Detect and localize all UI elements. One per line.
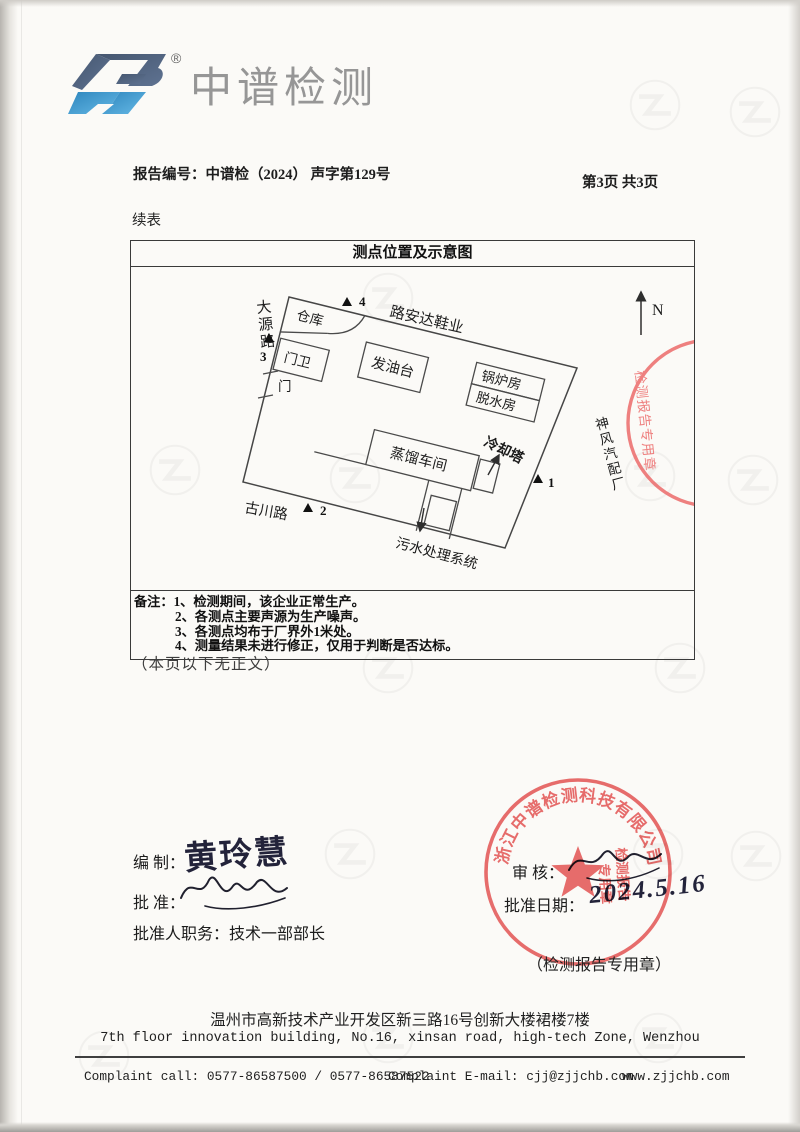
stamp-seal-text-2: 专用章: [596, 863, 615, 905]
gate-swing-arc: [327, 308, 364, 341]
note-item: 2、各测点主要声源为生产噪声。: [175, 610, 690, 625]
point-4-marker: [342, 297, 352, 306]
cooling-tower-label: 冷却塔: [481, 433, 527, 467]
point-1-number: 1: [548, 475, 555, 490]
brand-name: 中谱检测: [190, 54, 378, 115]
neighbor-top-label: 路安达鞋业: [388, 303, 465, 336]
warehouse-label: 仓库: [295, 308, 325, 329]
stamp-seal-text-1: 检测报告: [613, 847, 633, 902]
report-number-value: 中谱检（2024） 声字第129号: [206, 167, 391, 183]
diagram-title: 测点位置及示意图: [131, 241, 694, 267]
paper-fold-line: [21, 0, 22, 1132]
neighbor-right-label: 神风汽配厂: [594, 415, 627, 493]
north-label: N: [652, 302, 664, 319]
scanned-report-page: ® 中谱检测 报告编号：中谱检（2024） 声字第129号 第3页 共3页 续表…: [0, 0, 800, 1132]
address-english: 7th floor innovation building, No.16, xi…: [0, 1031, 800, 1046]
approver-title-line: 批准人职务：技术一部部长: [133, 920, 325, 944]
paper-edge-bottom: [0, 1122, 800, 1132]
gatehouse-label: 门卫: [282, 350, 312, 371]
continued-table-label: 续表: [132, 209, 161, 230]
site-diagram: 仓库 门卫 发油台 锅炉房 脱水房 蒸馏车间 大: [131, 267, 694, 591]
stamp-caption: （检测报告专用章）: [527, 951, 671, 975]
report-number-label: 报告编号：: [133, 167, 206, 183]
end-of-text-note: （本页以下无正文）: [132, 652, 281, 674]
approver-title-value: 技术一部部长: [229, 926, 325, 943]
road-guchuan-label: 古川路: [243, 499, 289, 523]
complaint-email: Complaint E-mail: cjj@zjjchb.com: [388, 1069, 634, 1084]
paper-edge-right: [788, 0, 800, 1132]
address-chinese: 温州市高新技术产业开发区新三路16号创新大楼裙楼7楼: [0, 1008, 800, 1030]
factory-boundary: [243, 297, 577, 548]
approver-title-label: 批准人职务：: [133, 926, 229, 943]
sewage-box: [424, 495, 456, 530]
point-2-marker: [303, 503, 313, 512]
complaint-phone: Complaint call: 0577-86587500 / 0577-865…: [84, 1069, 430, 1084]
paper-edge-left: [0, 0, 18, 1132]
paper-edge-top: [0, 0, 800, 7]
footer-divider: [75, 1056, 745, 1058]
site-diagram-svg: 仓库 门卫 发油台 锅炉房 脱水房 蒸馏车间 大: [131, 267, 694, 590]
oil-platform-label: 发油台: [370, 354, 416, 381]
point-4-number: 4: [359, 294, 366, 309]
note-item: 1、检测期间，该企业正常生产。: [174, 594, 365, 609]
company-round-stamp: 浙江中谱检测科技有限公司 检测报告 专用章: [476, 770, 680, 974]
notes-section: 备注：1、检测期间，该企业正常生产。 2、各测点主要声源为生产噪声。 3、各测点…: [131, 591, 694, 659]
website-url: www.zjjchb.com: [622, 1069, 730, 1084]
approved-by-signature-scribble: [175, 866, 297, 914]
zp-logo-icon: [62, 46, 184, 120]
gate-label: 门: [278, 379, 292, 394]
point-2-number: 2: [320, 503, 327, 518]
report-number-line: 报告编号：中谱检（2024） 声字第129号: [133, 163, 390, 184]
page-indicator: 第3页 共3页: [582, 171, 658, 192]
distillation-label: 蒸馏车间: [388, 444, 448, 475]
yard-wall: [314, 452, 365, 465]
seal-arc-overlay: 检测报告专用章: [628, 340, 694, 506]
point-3-number: 3: [260, 349, 267, 364]
notes-label: 备注：: [134, 594, 174, 609]
road-dayuan-label: 大源路: [256, 299, 276, 352]
registered-trademark: ®: [171, 50, 181, 66]
measurement-table: 测点位置及示意图 仓库 门卫 发油台: [130, 240, 695, 660]
sewage-label: 污水处理系统: [394, 535, 479, 572]
